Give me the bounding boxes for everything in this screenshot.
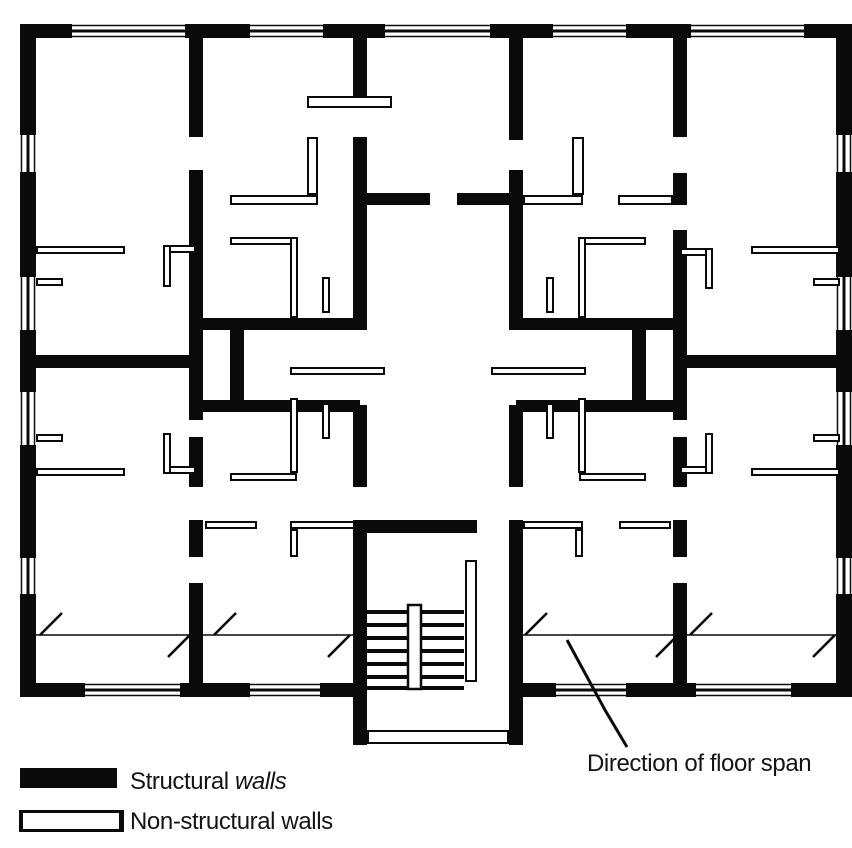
direction-of-floor-span-label: Direction of floor span <box>587 750 811 778</box>
structural-walls-legend-text: Structural <box>130 768 235 795</box>
nonstructural-walls-layer <box>37 97 839 743</box>
structural-wall-swatch <box>20 768 117 788</box>
nonstructural-wall-swatch <box>19 810 124 832</box>
structural-walls-legend-text-italic: walls <box>235 768 286 795</box>
floor-span-layer <box>36 613 836 747</box>
stair-stringer <box>408 605 421 689</box>
floor-plan-drawing <box>0 0 852 848</box>
nonstructural-walls-legend-label: Non-structural walls <box>130 808 333 836</box>
structural-walls-legend-label: Structural walls <box>130 768 286 796</box>
floor-plan-page: Direction of floor span Structural walls… <box>0 0 852 848</box>
